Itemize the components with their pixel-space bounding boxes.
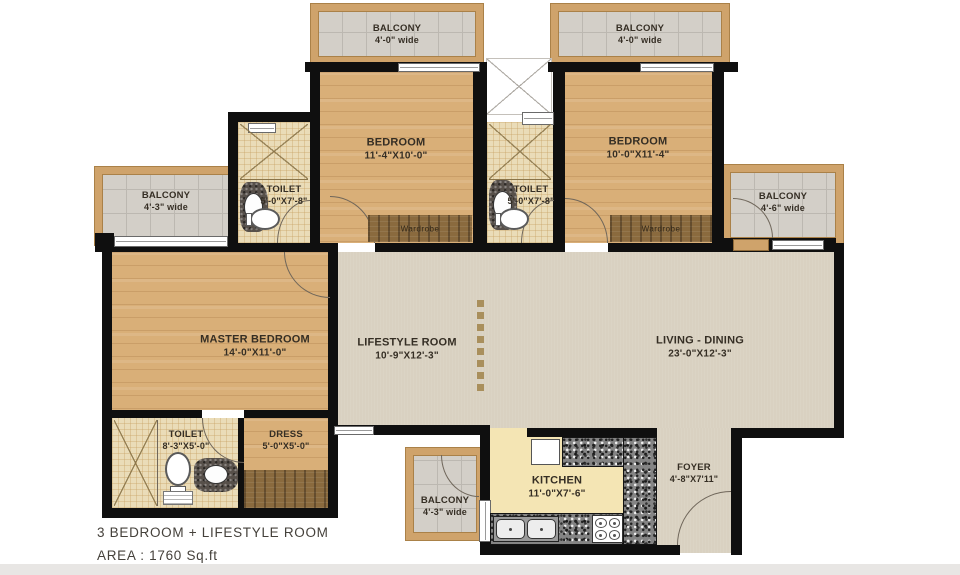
wc [499,208,529,230]
living-dining-label: LIVING - DINING 23'-0"X12'-3" [656,333,744,360]
shower-area [240,124,308,180]
wall [480,545,680,555]
balcony-left-label: BALCONY 4'-3" wide [142,190,190,214]
wc [165,452,191,486]
dress-label: DRESS 5'-0"X5'-0" [262,429,309,453]
room-dims: 11'-4"X10'-0" [365,150,428,163]
shower-area [489,124,551,180]
wall [527,428,657,437]
wall [102,243,112,518]
wall [102,410,202,418]
room-name: TOILET [260,184,307,196]
bedroom-1-label: BEDROOM 11'-4"X10'-0" [365,135,428,162]
sink-bowl [496,519,525,539]
room-name: MASTER BEDROOM [200,332,310,346]
room-dims: 10'-0"X11'-4" [607,149,670,162]
bath-mat [163,491,193,505]
balcony-name: BALCONY [616,23,664,35]
foyer-label: FOYER 4'-8"X7'11" [670,462,719,486]
wall [731,428,742,555]
room-dims: 14'-0"X11'-0" [200,347,310,360]
bedroom-2-label: BEDROOM 10'-0"X11'-4" [607,134,670,161]
kitchen-sink [493,516,559,542]
wall [375,243,485,252]
shower-area [114,420,158,506]
balcony-name: BALCONY [142,190,190,202]
balcony-size: 4'-3" wide [142,202,190,214]
plan-title-block: 3 BEDROOM + LIFESTYLE ROOM AREA : 1760 S… [97,522,329,568]
window [640,63,714,72]
kitchen-label: KITCHEN 11'-0"X7'-6" [528,473,585,500]
burner-icon [595,530,607,540]
floor-plan: Wardrobe Wardrobe BEDROOM 11'-4"X10'-0" … [0,0,960,575]
wall [487,243,565,252]
window [334,426,374,435]
room-dims: 8'-3"X5'-0" [162,441,209,453]
wall [712,62,724,252]
balcony-size: 4'-0" wide [616,35,664,47]
burner-icon [595,518,607,528]
lifestyle-room-label: LIFESTYLE ROOM 10'-9"X12'-3" [357,335,456,362]
room-name: TOILET [162,429,209,441]
balcony-right-label: BALCONY 4'-6" wide [759,191,807,215]
wall [310,62,320,252]
balcony-top-right-label: BALCONY 4'-0" wide [616,23,664,47]
room-name: LIVING - DINING [656,333,744,347]
toilet-bedroom2-label: TOILET 5'-0"X7'-8" [507,184,554,208]
room-dims: 11'-0"X7'-6" [528,488,585,501]
room-dims: 5'-0"X7'-8" [260,196,307,208]
wc-base [495,213,501,226]
wc-base [246,213,252,226]
cooking-hob [592,515,623,543]
plan-title: 3 BEDROOM + LIFESTYLE ROOM [97,522,329,545]
fridge [531,439,560,465]
balcony-name: BALCONY [759,191,807,203]
master-bedroom-label: MASTER BEDROOM 14'-0"X11'-0" [200,332,310,359]
wardrobe-dress [244,470,328,508]
toilet-bedroom1-label: TOILET 5'-0"X7'-8" [260,184,307,208]
room-name: BEDROOM [365,135,428,149]
dashed-partition [477,300,484,392]
sink-bowl [527,519,556,539]
duct-shaft [486,58,552,115]
wall [473,62,487,252]
room-dims: 5'-0"X5'-0" [262,441,309,453]
balcony-bottom-label: BALCONY 4'-3" wide [421,495,469,519]
balcony-name: BALCONY [373,23,421,35]
wall [95,233,114,252]
wall [834,243,844,438]
wardrobe-bedroom1-label: Wardrobe [401,225,440,234]
balcony-size: 4'-3" wide [421,507,469,519]
toilet-master-label: TOILET 8'-3"X5'-0" [162,429,209,453]
room-name: KITCHEN [528,473,585,487]
room-name: DRESS [262,429,309,441]
wall [228,112,320,122]
room-name: BEDROOM [607,134,670,148]
room-name: LIFESTYLE ROOM [357,335,456,349]
wall [608,243,724,252]
wall [742,428,844,438]
wall [244,410,338,418]
balcony-door [733,239,769,251]
balcony-size: 4'-0" wide [373,35,421,47]
window [398,63,480,72]
balcony-top-left-label: BALCONY 4'-0" wide [373,23,421,47]
window [772,240,824,250]
wc [250,208,280,230]
wall [553,62,565,252]
room-dims: 4'-8"X7'11" [670,474,719,486]
wardrobe-bedroom2-label: Wardrobe [642,225,681,234]
granite-counter [623,437,657,545]
burner-icon [609,518,621,528]
page-bottom-band [0,564,960,575]
room-dims: 23'-0"X12'-3" [656,348,744,361]
room-dims: 5'-0"X7'-8" [507,196,554,208]
balcony-name: BALCONY [421,495,469,507]
room-name: FOYER [670,462,719,474]
balcony-size: 4'-6" wide [759,203,807,215]
washbasin [204,465,228,484]
room-name: TOILET [507,184,554,196]
wall [102,508,338,518]
room-dims: 10'-9"X12'-3" [357,350,456,363]
burner-icon [609,530,621,540]
wall [228,112,238,252]
window [114,236,228,247]
